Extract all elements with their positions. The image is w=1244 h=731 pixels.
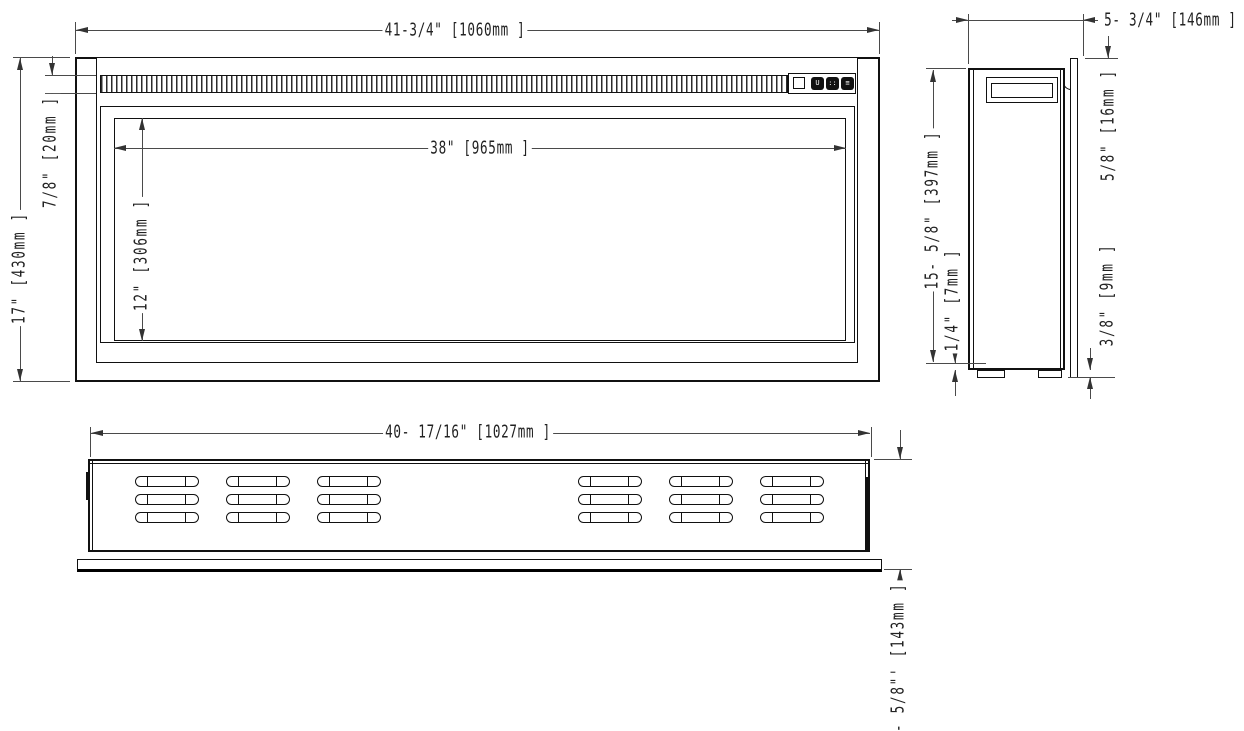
extension-line <box>874 459 912 460</box>
vent-louver <box>578 476 642 487</box>
vent-louver <box>226 476 290 487</box>
vent-louver <box>669 476 733 487</box>
mounting-flange <box>77 559 882 572</box>
dimension-arrow <box>858 430 870 436</box>
vent-louver <box>578 512 642 523</box>
vent-louver <box>669 512 733 523</box>
dimension-label: 40- 17/16" [1027mm ] <box>383 422 553 443</box>
dimension-arrow <box>897 447 903 459</box>
bottom-body-inner-line <box>90 463 868 464</box>
vent-louver <box>226 512 290 523</box>
edge-tab <box>86 472 90 500</box>
vent-louver <box>135 494 199 505</box>
vent-louver <box>760 476 824 487</box>
vent-louver <box>760 494 824 505</box>
vent-louver <box>317 476 381 487</box>
technical-drawing: U :: ≡ 41-3/4" [1060mm ] 17" [430mm ] 7/… <box>0 0 1244 731</box>
vent-louver <box>135 476 199 487</box>
dimension-arrow <box>897 569 903 581</box>
extension-line <box>871 427 872 457</box>
bottom-body <box>88 459 870 552</box>
dimension-arrow <box>91 430 103 436</box>
dimension-label: 5- 5/8"' [143mm ] <box>888 581 909 731</box>
bottom-body-inner-line <box>92 461 93 550</box>
vent-louver <box>226 494 290 505</box>
vent-louver <box>669 494 733 505</box>
vent-louver <box>317 494 381 505</box>
vent-louver <box>317 512 381 523</box>
vent-louver <box>578 494 642 505</box>
edge-tab <box>865 477 870 550</box>
vent-louver <box>760 512 824 523</box>
bottom-view: 40- 17/16" [1027mm ] 5- 5/8"' [143mm ] <box>0 0 1244 731</box>
vent-louver <box>135 512 199 523</box>
